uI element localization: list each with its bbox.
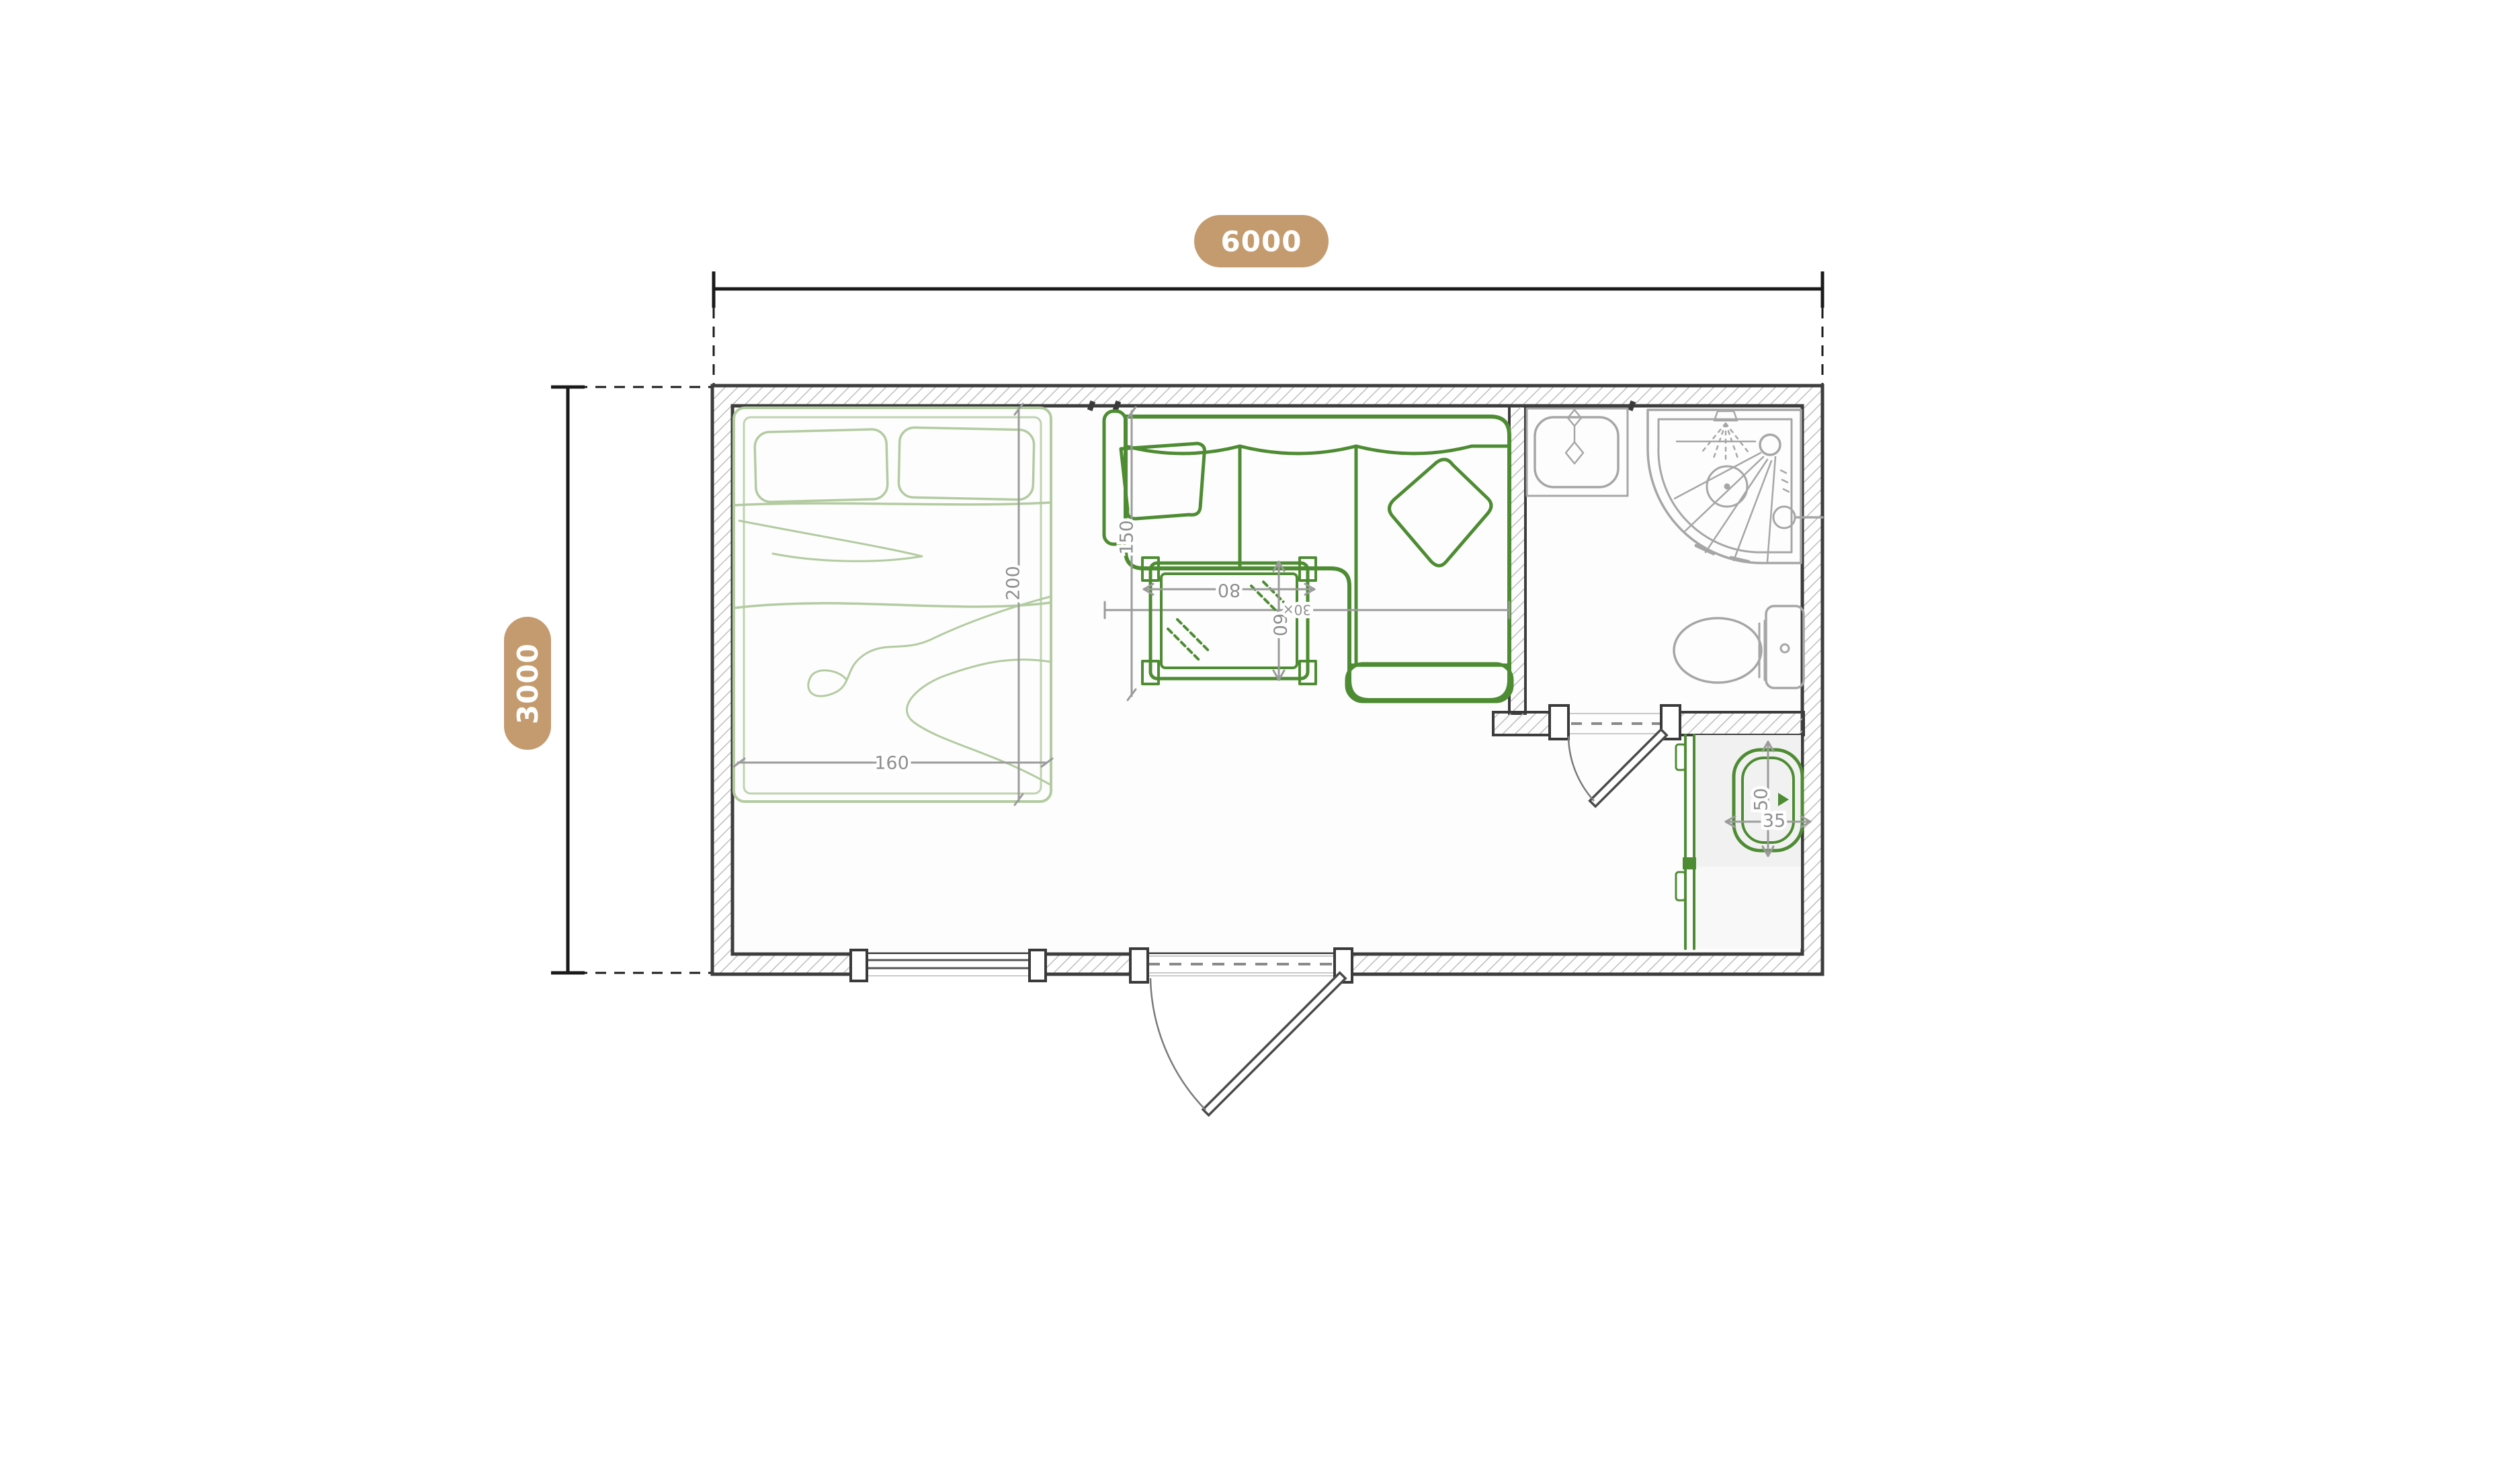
- kitchen-unit: [1676, 735, 1801, 949]
- floor-plan-page: 200 160 150: [0, 0, 2520, 1464]
- svg-text:150: 150: [1117, 520, 1138, 555]
- height-dimension-label: 3000: [511, 643, 544, 724]
- entrance-door: [1130, 949, 1352, 1115]
- svg-text:50: 50: [1751, 788, 1772, 811]
- height-dimension-badge: 3000: [504, 617, 551, 750]
- svg-text:80: 80: [1218, 580, 1241, 601]
- width-dimension-badge: 6000: [1194, 215, 1329, 267]
- width-dimension-label: 6000: [1221, 225, 1302, 258]
- svg-text:30×: 30×: [1283, 602, 1311, 618]
- window: [851, 950, 1046, 981]
- svg-text:35: 35: [1763, 811, 1786, 832]
- dimension-left: [551, 387, 712, 973]
- dimension-top: [714, 271, 1822, 384]
- svg-text:160: 160: [874, 753, 909, 774]
- svg-text:200: 200: [1003, 566, 1024, 601]
